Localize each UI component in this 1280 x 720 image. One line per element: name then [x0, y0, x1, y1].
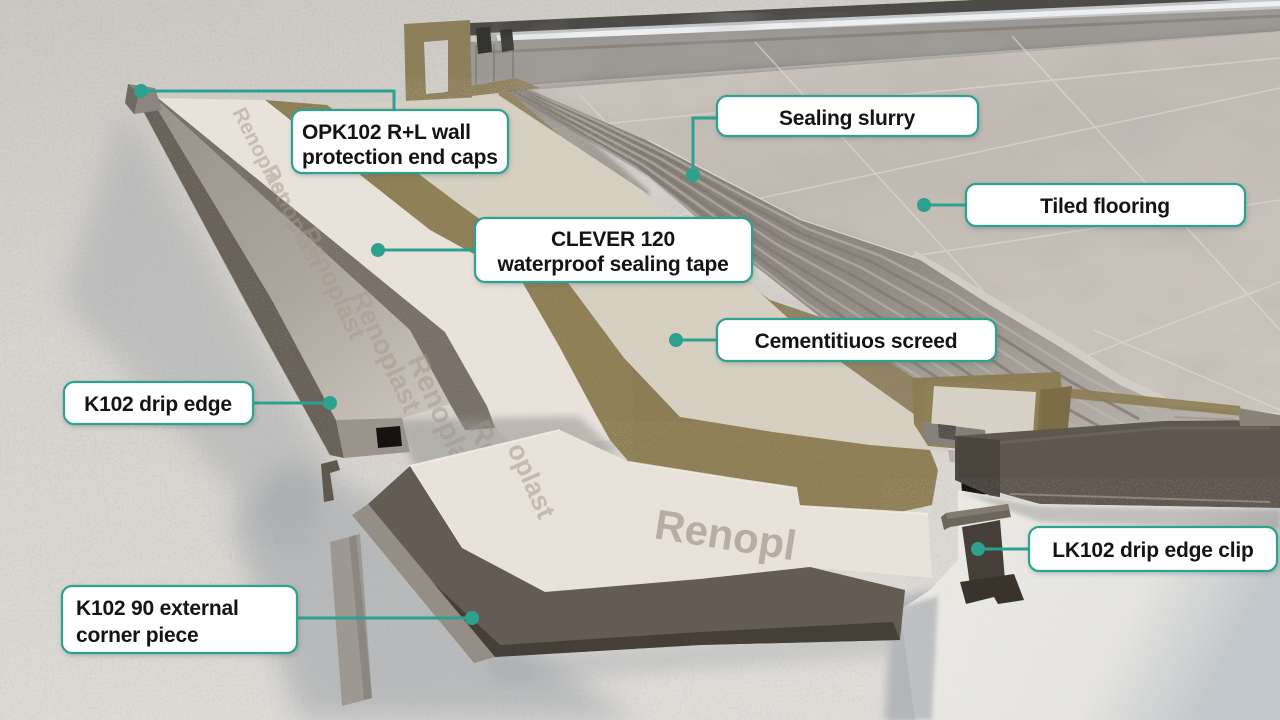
svg-text:K102 90 external: K102 90 external	[76, 597, 239, 620]
svg-text:waterproof sealing tape: waterproof sealing tape	[496, 253, 728, 276]
svg-text:Tiled flooring: Tiled flooring	[1040, 195, 1170, 218]
svg-text:corner piece: corner piece	[76, 624, 199, 647]
svg-text:CLEVER 120: CLEVER 120	[551, 228, 675, 251]
svg-text:K102 drip edge: K102 drip edge	[84, 393, 232, 416]
svg-text:OPK102 R+L wall: OPK102 R+L wall	[302, 121, 471, 144]
svg-text:Cementitiuos screed: Cementitiuos screed	[755, 330, 958, 353]
svg-text:protection end caps: protection end caps	[302, 146, 498, 169]
svg-text:LK102 drip edge clip: LK102 drip edge clip	[1052, 539, 1253, 562]
svg-text:Sealing slurry: Sealing slurry	[779, 107, 916, 130]
